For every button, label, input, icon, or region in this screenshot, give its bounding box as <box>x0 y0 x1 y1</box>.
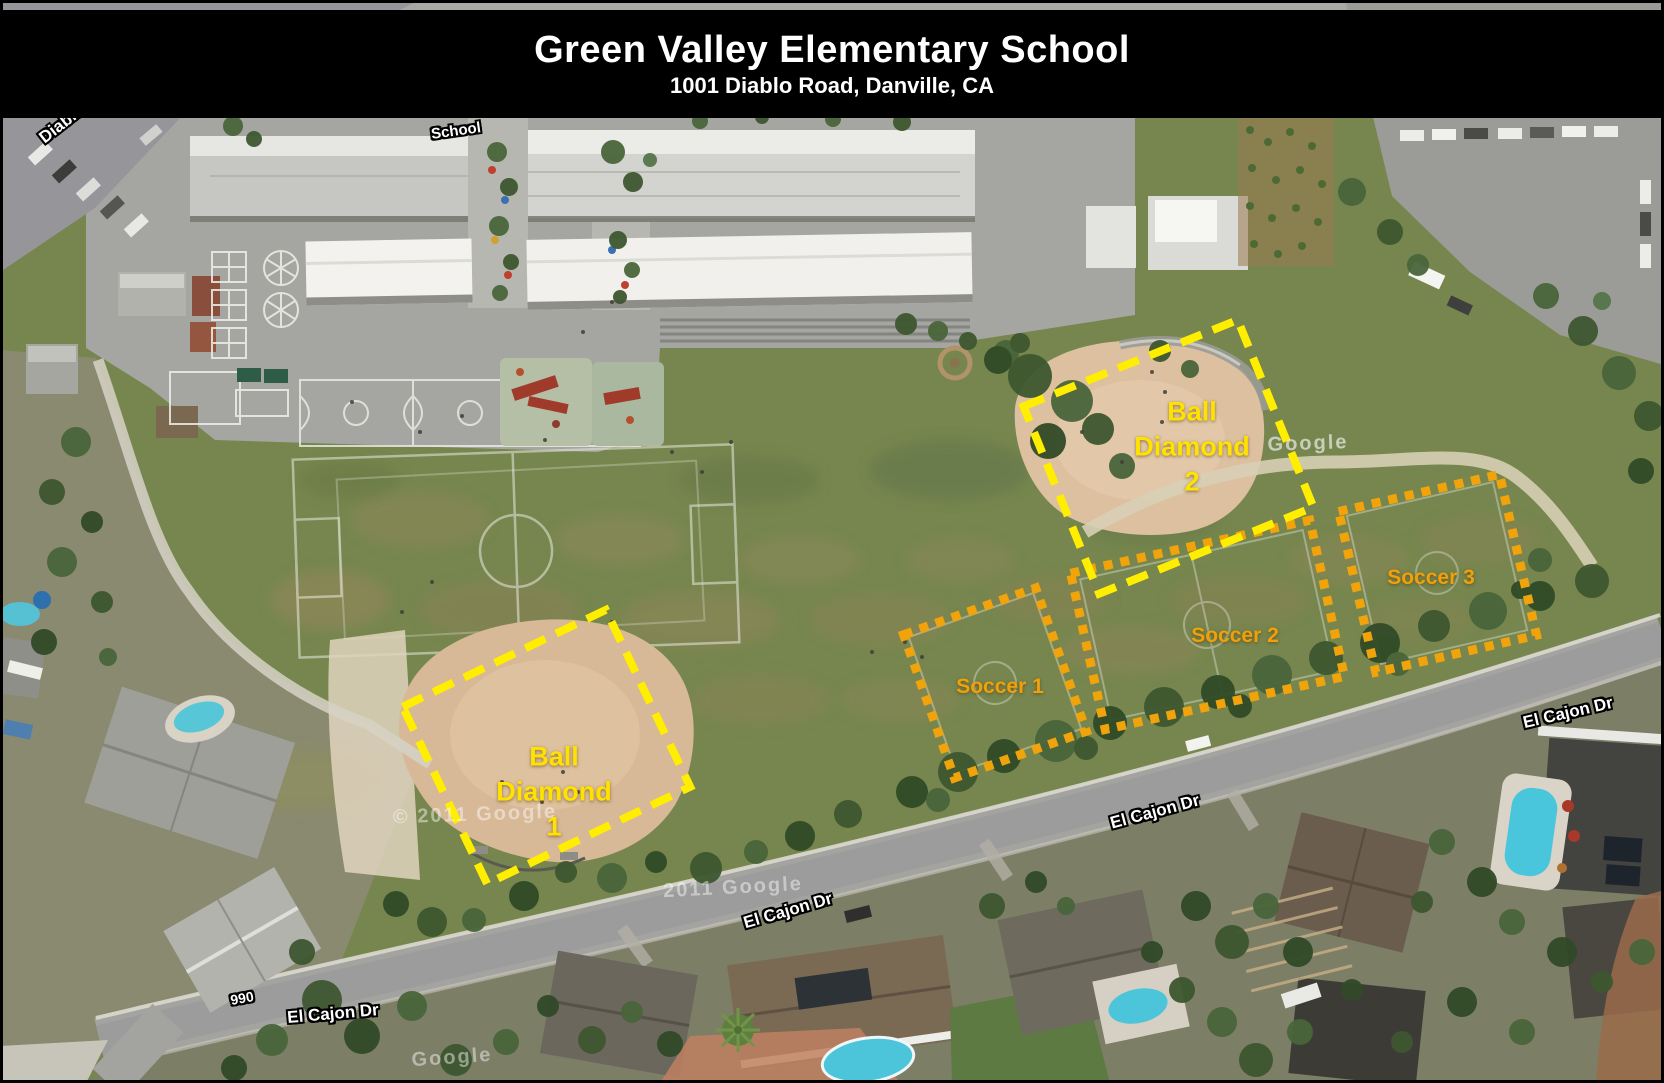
ball-diamond-2-label: Ball Diamond 2 <box>1134 395 1250 500</box>
field-annotations <box>0 0 1664 1083</box>
google-watermark: Google <box>1267 431 1349 457</box>
soccer-3-label: Soccer 3 <box>1387 566 1475 590</box>
ball-diamond-2-label-line1: Ball <box>1134 395 1250 430</box>
annotated-aerial-map: Ball Diamond 1 Ball Diamond 2 Soccer 1 S… <box>0 0 1664 1083</box>
ball-diamond-1-label-line1: Ball <box>496 740 612 775</box>
ball-diamond-2-label-line2: Diamond <box>1134 430 1250 465</box>
soccer-1-label: Soccer 1 <box>956 675 1044 699</box>
title-banner: Green Valley Elementary School 1001 Diab… <box>0 10 1664 118</box>
ball-diamond-1-label: Ball Diamond 1 <box>496 740 612 845</box>
soccer-2-label: Soccer 2 <box>1191 624 1279 648</box>
page-subtitle: 1001 Diablo Road, Danville, CA <box>670 73 994 99</box>
page-title: Green Valley Elementary School <box>534 29 1130 71</box>
ball-diamond-2-label-line3: 2 <box>1134 465 1250 500</box>
